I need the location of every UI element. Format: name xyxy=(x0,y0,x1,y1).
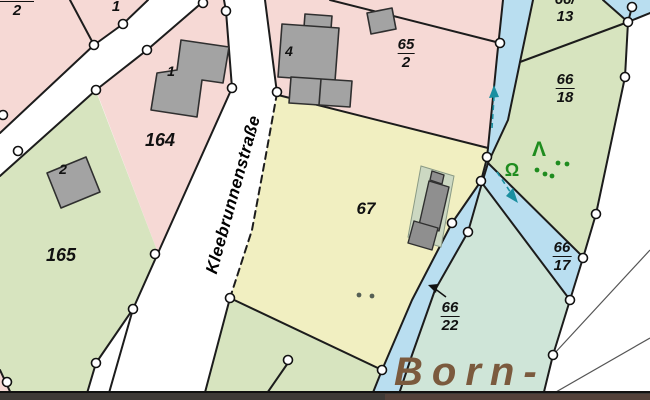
area-label-born: Born- xyxy=(394,352,546,392)
cadastral-map[interactable]: 2 1 164 165 67 65 2 66/ 13 66 18 66 17 6… xyxy=(0,0,650,400)
map-edge-strip-right xyxy=(385,394,650,400)
parcel-label-66-22: 66 22 xyxy=(441,299,460,335)
parcel-label-65-2: 65 2 xyxy=(398,36,415,72)
shed-65-2[interactable] xyxy=(367,8,396,34)
parcel-label-66-17: 66 17 xyxy=(553,239,572,275)
parcel-label-66-18: 66 18 xyxy=(556,71,575,107)
parcel-label-top-left: 2 xyxy=(0,1,34,19)
map-canvas xyxy=(0,0,650,400)
building-65-4[interactable] xyxy=(278,24,339,81)
parcel-label-66-13: 66/ 13 xyxy=(555,0,576,26)
